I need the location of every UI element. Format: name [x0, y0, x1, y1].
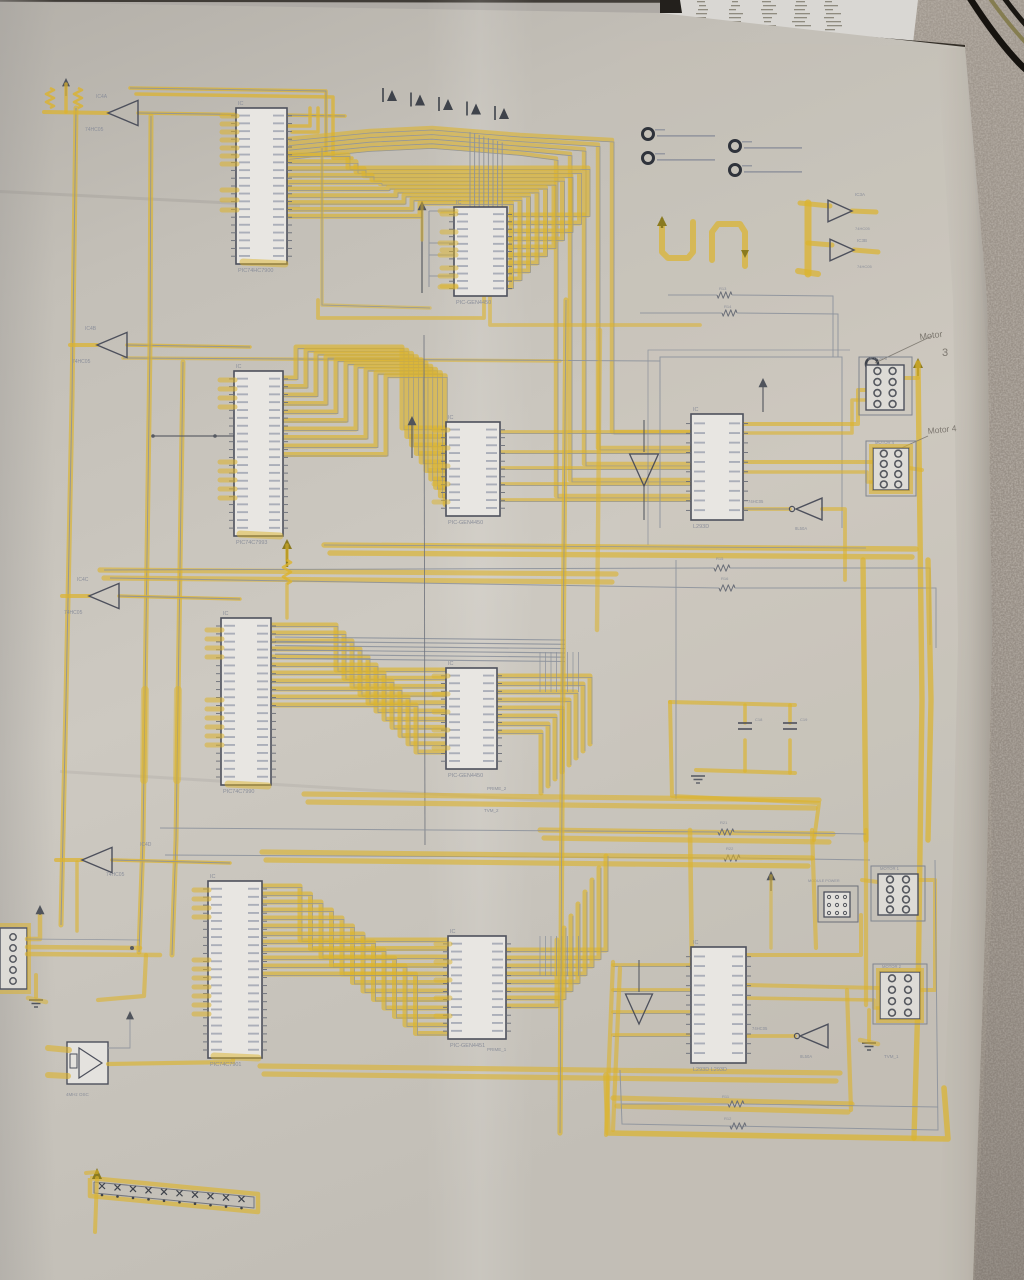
svg-text:74HC05: 74HC05 [752, 1026, 768, 1031]
svg-text:R16: R16 [721, 576, 729, 581]
svg-text:C18: C18 [755, 717, 763, 722]
svg-text:IC: IC [448, 415, 454, 421]
svg-text:IC: IC [693, 940, 699, 946]
svg-text:IC4B: IC4B [85, 326, 97, 332]
svg-text:IC4A: IC4A [96, 94, 108, 100]
svg-text:R12: R12 [724, 1116, 732, 1121]
svg-text:R13: R13 [719, 286, 727, 291]
svg-text:8L50A: 8L50A [800, 1054, 812, 1059]
svg-text:PIC74C7901: PIC74C7901 [210, 1062, 242, 1068]
svg-text:PIC-GEN4450: PIC-GEN4450 [448, 520, 483, 526]
svg-text:TVM_1: TVM_1 [884, 1054, 899, 1059]
svg-text:IC: IC [223, 611, 229, 617]
svg-text:PRIME_1: PRIME_1 [487, 1047, 507, 1052]
svg-text:R22: R22 [726, 846, 734, 851]
svg-text:IC4D: IC4D [140, 842, 152, 848]
svg-text:R14: R14 [724, 304, 732, 309]
svg-text:PIC74C7990: PIC74C7990 [223, 789, 255, 795]
svg-text:PIC-GEN4450: PIC-GEN4450 [448, 773, 483, 779]
svg-text:IC3B: IC3B [857, 238, 867, 243]
svg-text:74HC05: 74HC05 [748, 499, 764, 504]
svg-text:IC: IC [210, 874, 216, 880]
svg-text:L293D: L293D [693, 524, 709, 530]
svg-text:IC: IC [238, 101, 244, 107]
svg-text:TVM_2: TVM_2 [484, 808, 499, 813]
svg-text:L293D L293D: L293D L293D [693, 1067, 727, 1073]
svg-text:IC: IC [236, 364, 242, 370]
svg-text:3: 3 [942, 347, 948, 359]
svg-text:C19: C19 [800, 717, 808, 722]
svg-text:R21: R21 [720, 820, 728, 825]
svg-text:PRIME_2: PRIME_2 [487, 786, 507, 791]
svg-text:R15: R15 [716, 556, 724, 561]
svg-text:PIC74HC7900: PIC74HC7900 [238, 268, 273, 274]
svg-text:PIC-GEN4450: PIC-GEN4450 [456, 300, 491, 306]
svg-text:IC4C: IC4C [77, 577, 89, 583]
svg-text:74HC05: 74HC05 [857, 264, 872, 269]
svg-text:74HC05: 74HC05 [64, 610, 83, 616]
svg-text:74HC05: 74HC05 [106, 872, 125, 878]
svg-text:8L50A: 8L50A [795, 526, 807, 531]
svg-text:74HC05: 74HC05 [72, 359, 91, 365]
svg-text:IC: IC [693, 407, 699, 413]
svg-text:PIC-GEN4451: PIC-GEN4451 [450, 1043, 485, 1049]
svg-text:PIC74C7993: PIC74C7993 [236, 540, 268, 546]
svg-text:MOTOR 1: MOTOR 1 [880, 866, 900, 871]
svg-text:IC: IC [450, 929, 456, 935]
svg-text:74HC05: 74HC05 [85, 127, 104, 133]
svg-text:74HC05: 74HC05 [855, 226, 870, 231]
svg-text:4MHz OSC: 4MHz OSC [66, 1092, 90, 1097]
svg-text:R11: R11 [722, 1094, 730, 1099]
svg-text:IC3A: IC3A [855, 192, 865, 197]
svg-text:IC: IC [456, 200, 462, 206]
svg-text:IC: IC [448, 661, 454, 667]
